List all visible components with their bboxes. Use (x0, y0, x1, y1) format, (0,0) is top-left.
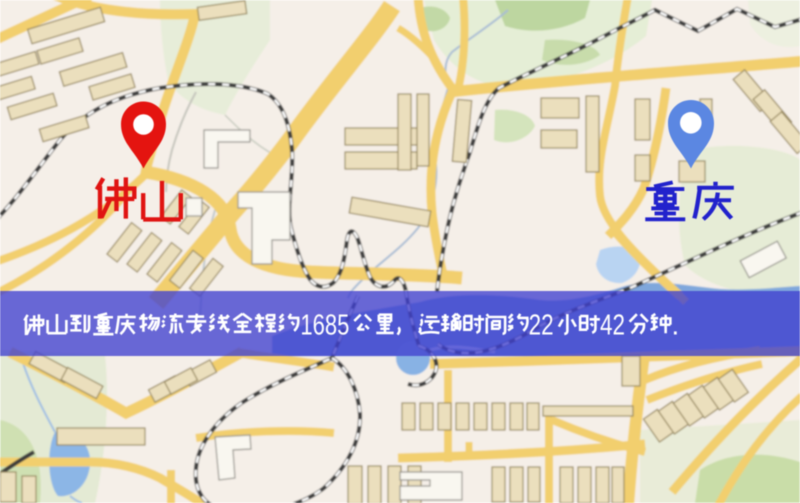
svg-text:22: 22 (529, 310, 554, 342)
svg-text:.: . (671, 310, 679, 342)
svg-text:42: 42 (600, 310, 625, 342)
svg-text:1685: 1685 (300, 310, 349, 342)
